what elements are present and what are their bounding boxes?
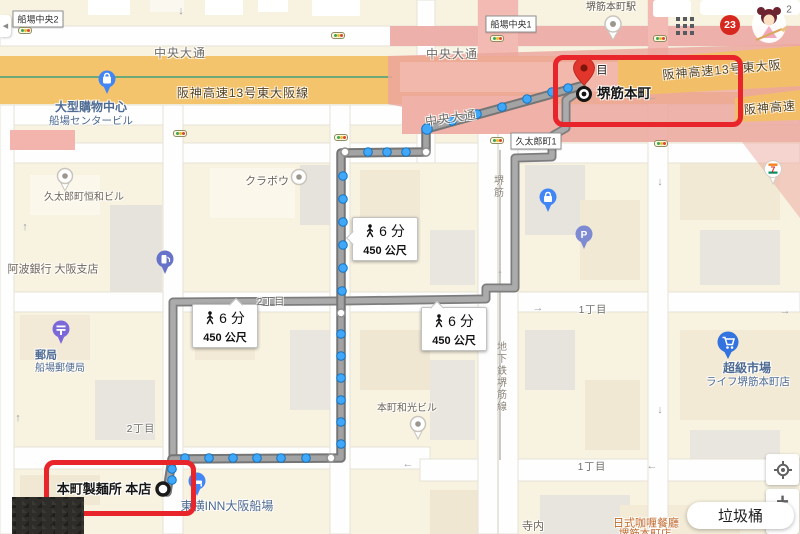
- svg-text:P: P: [581, 230, 588, 241]
- panel-collapse-tab[interactable]: ◀: [0, 15, 11, 37]
- grid-dots-icon: [676, 17, 695, 36]
- poi-label-curry-branch: 堺筋本町店: [619, 528, 672, 534]
- poi-label-kowa-bldg: 久太郎町恒和ビル: [44, 192, 124, 204]
- badge-distance: 450 公尺: [432, 332, 475, 348]
- badge-time: 6 分: [448, 311, 474, 331]
- poi-label-terauchi: 寺内: [522, 521, 544, 534]
- traffic-light-icon: [654, 140, 668, 147]
- avatar-count-label: 2: [786, 5, 792, 16]
- poi-label-kurabo: クラボウ: [245, 176, 289, 189]
- road-arrow-left: ←: [647, 460, 658, 472]
- block-label-2chome-a: 2丁目: [257, 297, 286, 309]
- satellite-layer-thumbnail[interactable]: [12, 497, 84, 534]
- sign-kyutaro-machi-1: 久太郎町1: [510, 133, 561, 150]
- google-maps-viewport[interactable]: P 7: [0, 0, 800, 534]
- road-arrow-down: ↓: [178, 5, 184, 17]
- poi-label-post-office: 郵局: [35, 350, 57, 363]
- road-arrow-right: →: [533, 302, 544, 314]
- poi-label-wako-bldg: 本町和光ビル: [377, 403, 437, 415]
- road-arrow-up: ↑: [497, 268, 503, 280]
- badge-time: 6 分: [219, 308, 245, 328]
- poi-label-station: 堺筋本町駅: [586, 2, 636, 14]
- svg-text:7: 7: [771, 165, 776, 175]
- walking-icon: [365, 224, 375, 238]
- road-arrow-right: →: [780, 305, 791, 317]
- block-label-2chome-b: 2丁目: [127, 424, 156, 436]
- block-label-1chome-b: 1丁目: [578, 462, 607, 474]
- road-arrow-up: ↑: [15, 412, 21, 424]
- road-arrow-up: ↑: [22, 221, 28, 233]
- poi-label-shopping-center: 大型購物中心: [55, 100, 127, 114]
- road-label-subway-line: 地下鉄堺筋線: [493, 341, 508, 413]
- road-arrow-down: ↓: [657, 176, 663, 188]
- building-pin-kurabo[interactable]: [292, 170, 307, 185]
- traffic-light-icon: [490, 35, 504, 42]
- collapse-arrow-icon: ◀: [3, 22, 8, 30]
- road-label-sakaisuji: 堺筋: [490, 175, 505, 199]
- walking-icon: [434, 314, 444, 328]
- sign-semba-chuo-2: 船場中央2: [12, 11, 63, 28]
- route-badge-1[interactable]: 6 分 450 公尺: [352, 217, 418, 261]
- traffic-light-icon: [331, 32, 345, 39]
- route-badge-3[interactable]: 6 分 450 公尺: [421, 307, 487, 351]
- poi-label-semba-center-bldg: 船場センタービル: [49, 115, 133, 127]
- annotation-box-destination: [553, 55, 743, 127]
- poi-label-post-office-jp: 船場郵便局: [35, 363, 85, 375]
- route-badge-2[interactable]: 6 分 450 公尺: [192, 304, 258, 348]
- poi-tooltip: 垃圾桶: [687, 502, 794, 529]
- road-label-chuo-odori-1: 中央大通: [154, 46, 206, 60]
- badge-time: 6 分: [379, 221, 405, 241]
- badge-distance: 450 公尺: [203, 329, 246, 345]
- traffic-light-icon: [18, 27, 32, 34]
- traffic-light-icon: [334, 134, 348, 141]
- badge-distance: 450 公尺: [363, 242, 406, 258]
- my-location-icon: [773, 460, 793, 480]
- traffic-light-icon: [173, 130, 187, 137]
- poi-label-supermarket: 超級市場: [723, 361, 771, 375]
- poi-label-supermarket-jp: ライフ堺筋本町店: [706, 376, 790, 388]
- block-label-1chome-a: 1丁目: [579, 305, 608, 317]
- road-arrow-left: ←: [403, 458, 414, 470]
- traffic-light-icon: [490, 137, 504, 144]
- sign-semba-chuo-1: 船場中央1: [485, 16, 536, 33]
- road-label-chuo-odori-2: 中央大通: [426, 47, 478, 61]
- walking-icon: [205, 311, 215, 325]
- road-arrow-down: ↓: [657, 404, 663, 416]
- highway-label-full: 阪神高速13号東大阪線: [177, 86, 309, 100]
- poi-label-awa-bank: 阿波銀行 大阪支店: [7, 264, 98, 277]
- count-badge: 23: [720, 15, 740, 35]
- traffic-light-icon: [653, 35, 667, 42]
- my-location-button[interactable]: [766, 454, 799, 485]
